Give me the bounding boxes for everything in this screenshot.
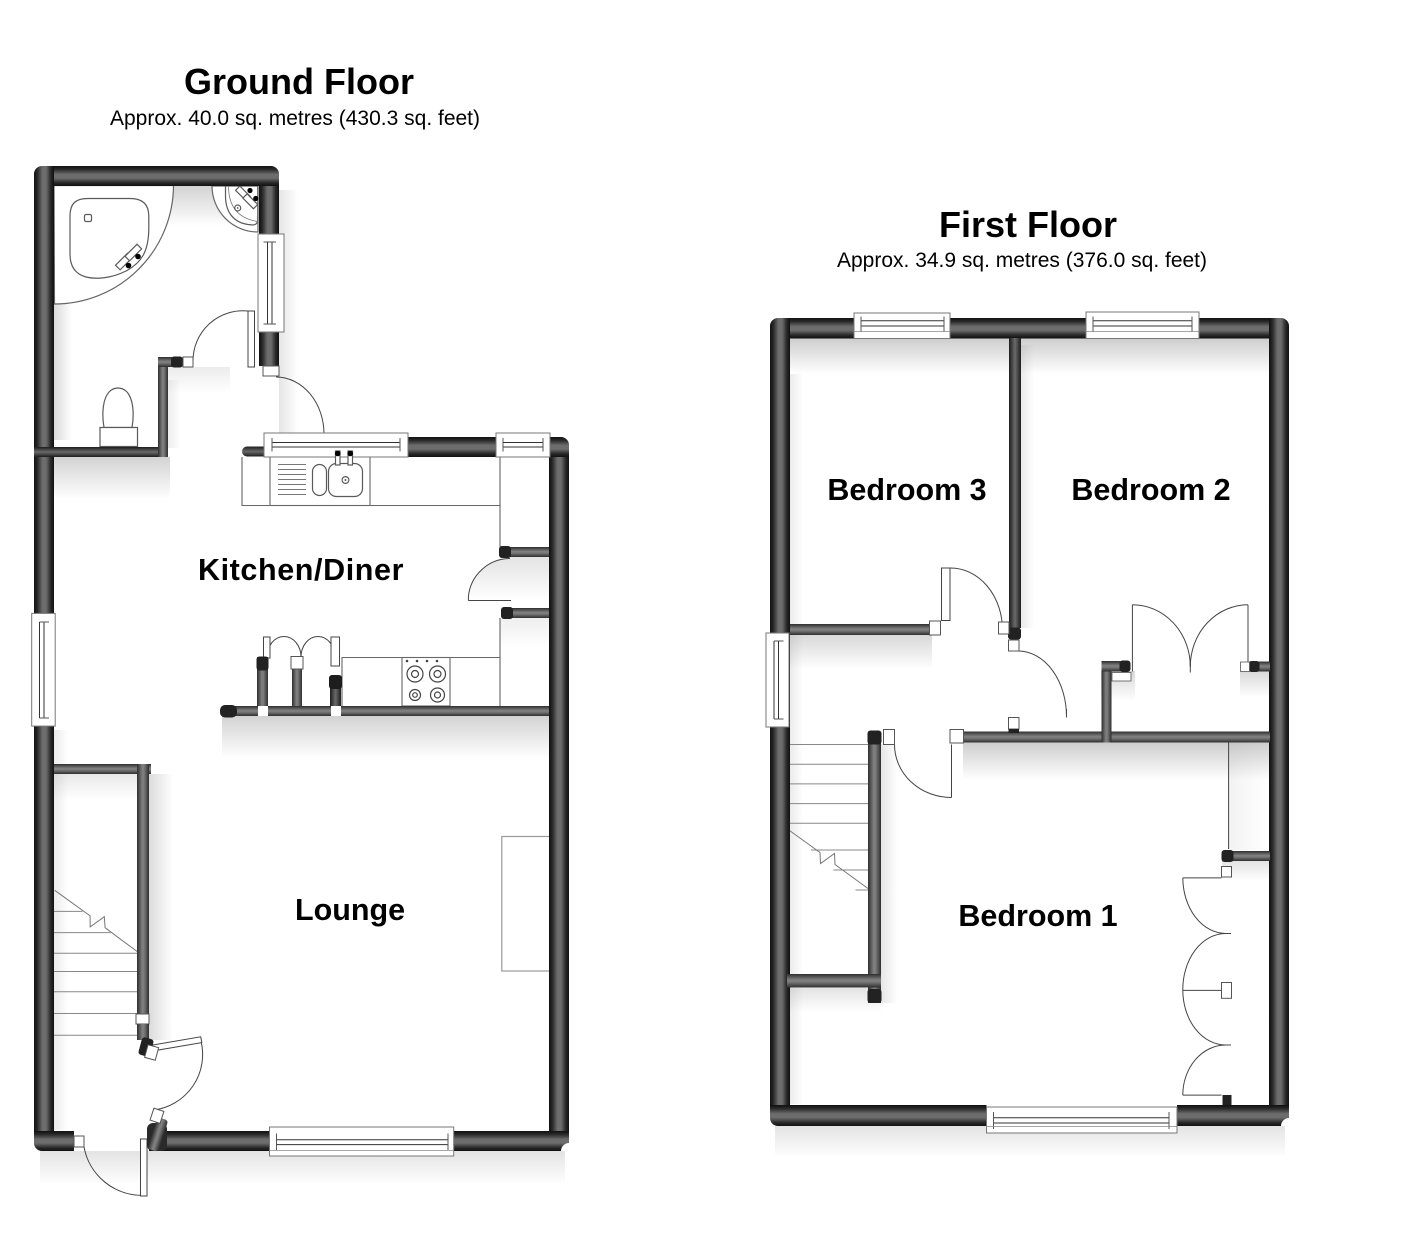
svg-text:Ground Floor: Ground Floor [184, 61, 414, 102]
svg-text:Approx. 40.0 sq. metres (430.3: Approx. 40.0 sq. metres (430.3 sq. feet) [110, 107, 480, 130]
svg-text:Bedroom 1: Bedroom 1 [958, 899, 1117, 933]
svg-text:Bedroom 2: Bedroom 2 [1071, 473, 1230, 507]
svg-text:Lounge: Lounge [295, 893, 405, 927]
svg-text:Bedroom 3: Bedroom 3 [827, 473, 986, 507]
svg-text:First Floor: First Floor [939, 204, 1117, 245]
svg-text:Approx. 34.9 sq. metres (376.0: Approx. 34.9 sq. metres (376.0 sq. feet) [837, 249, 1207, 272]
svg-text:Kitchen/Diner: Kitchen/Diner [198, 553, 404, 587]
